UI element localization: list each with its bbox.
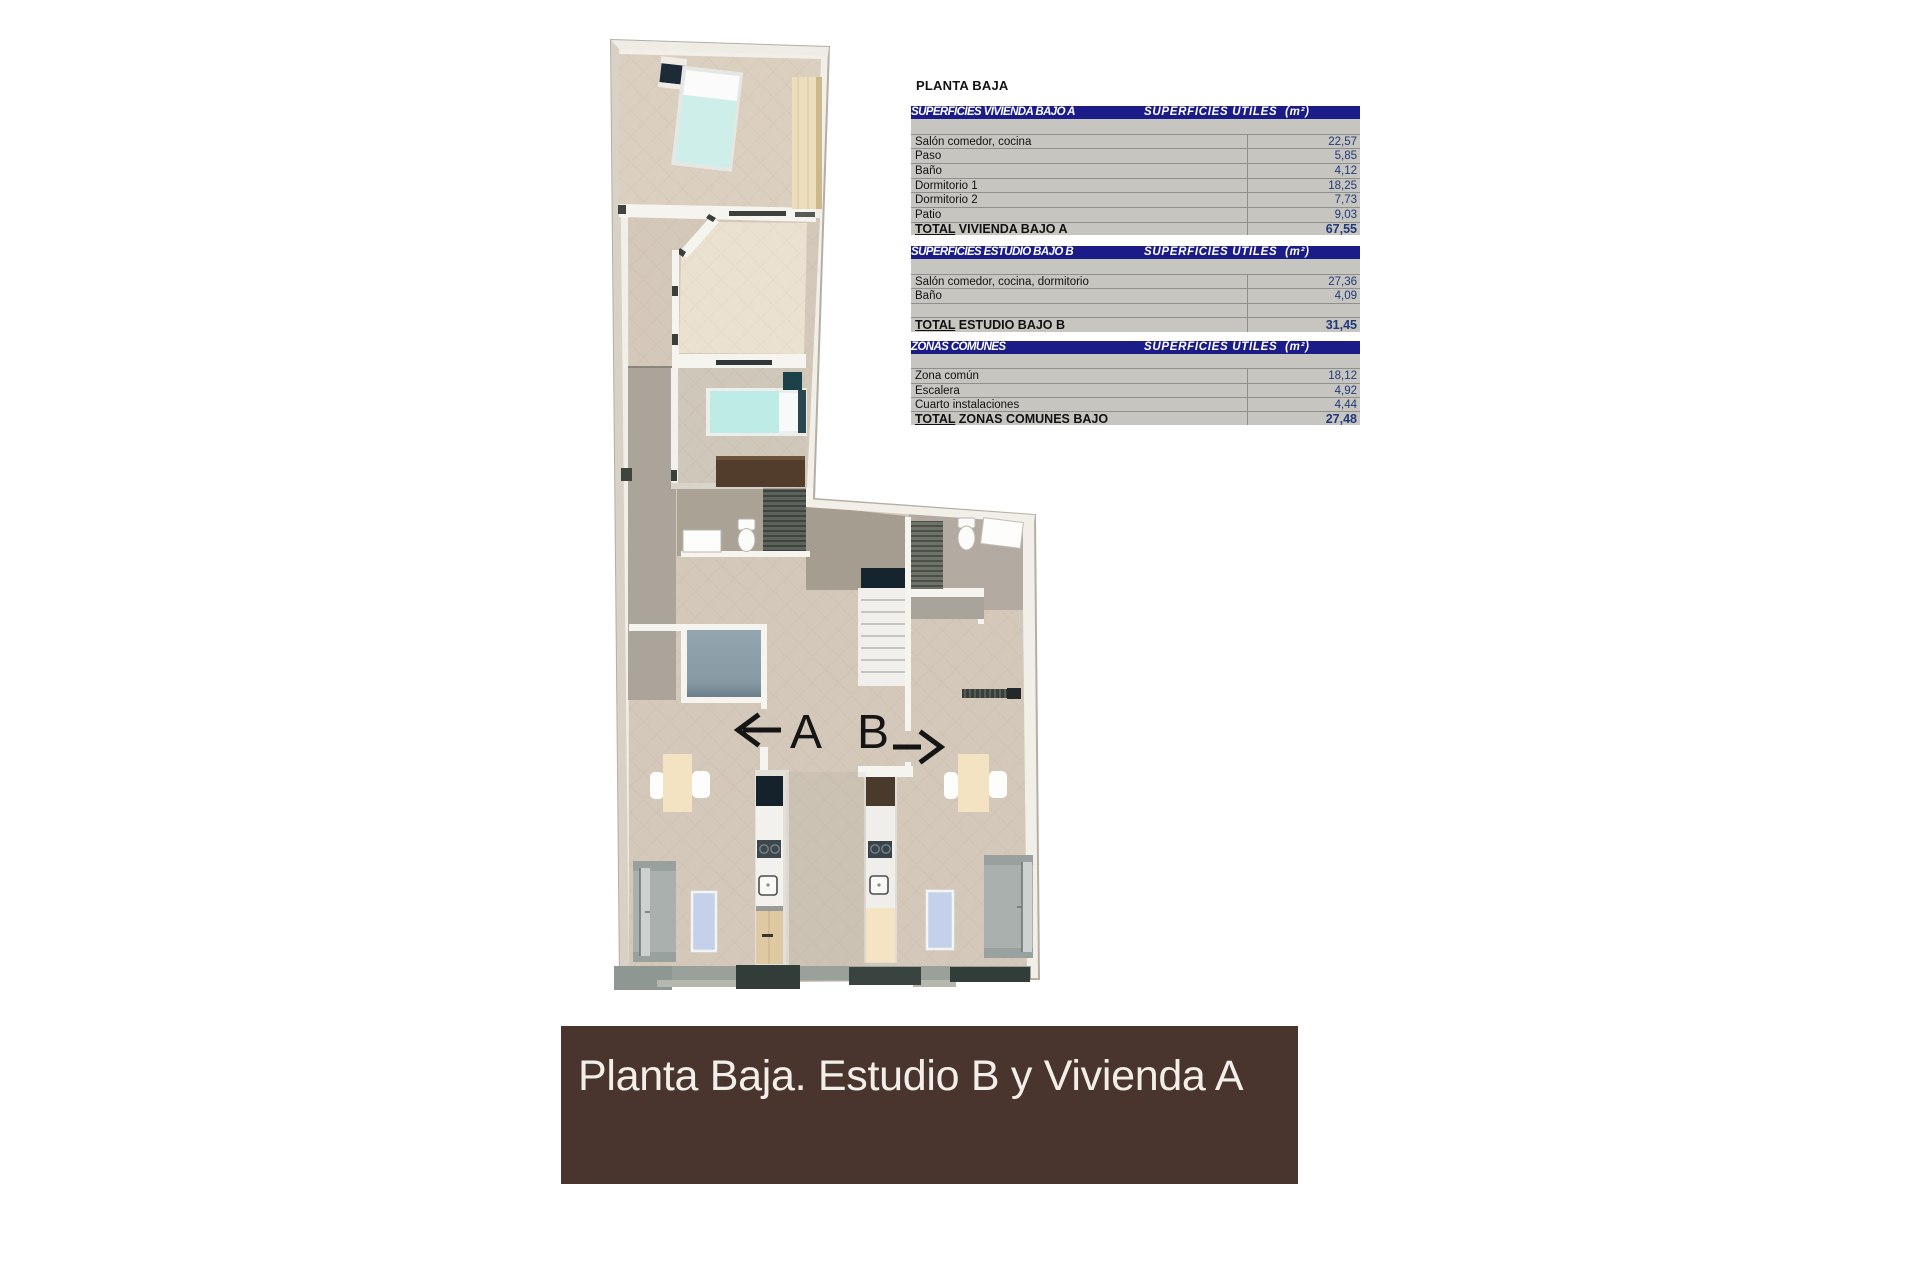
- svg-text:B: B: [857, 706, 889, 759]
- svg-text:A: A: [790, 706, 822, 759]
